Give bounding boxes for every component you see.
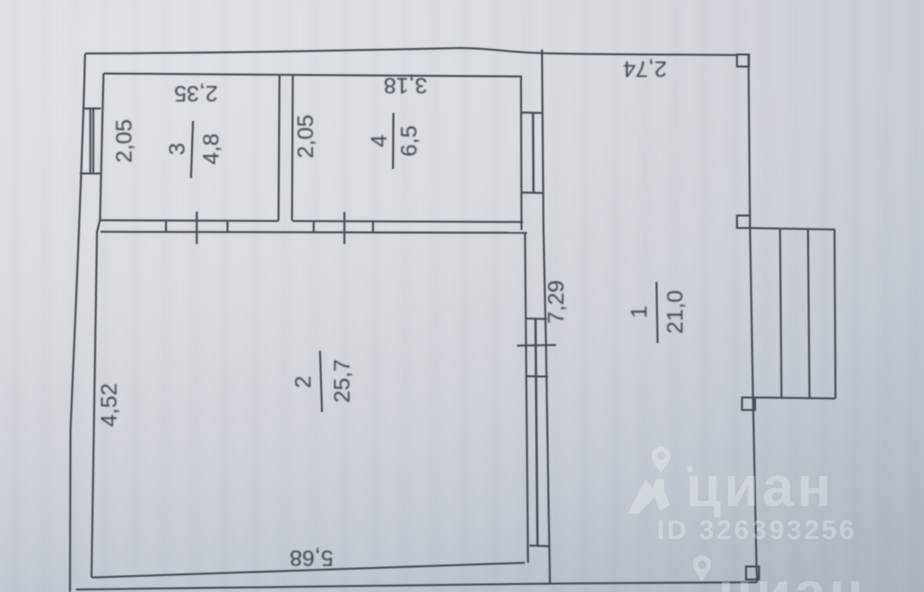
svg-text:1: 1 [627,306,652,319]
svg-text:3,18: 3,18 [384,73,428,98]
svg-text:7,29: 7,29 [544,280,569,324]
svg-text:2,35: 2,35 [174,81,218,106]
svg-text:3: 3 [165,143,190,156]
svg-text:ID 326393256: ID 326393256 [657,515,857,545]
svg-text:6,5: 6,5 [397,125,422,156]
svg-text:25,7: 25,7 [330,359,355,403]
svg-text:4,8: 4,8 [199,133,224,164]
svg-text:4: 4 [367,135,392,148]
svg-text:циан: циан [718,561,866,592]
svg-text:2,74: 2,74 [623,57,667,82]
svg-text:2,05: 2,05 [293,115,318,159]
svg-text:циан: циан [686,455,834,519]
svg-text:4,52: 4,52 [97,383,122,427]
svg-text:2,05: 2,05 [112,119,137,163]
svg-text:21,0: 21,0 [663,290,688,334]
svg-text:5,68: 5,68 [290,546,334,571]
svg-text:2: 2 [291,376,316,389]
